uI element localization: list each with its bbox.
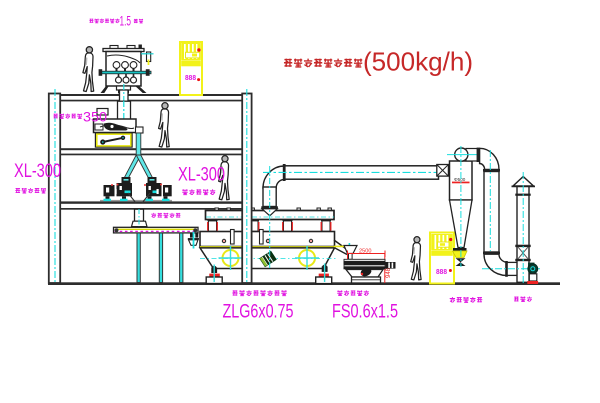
svg-text:Φ500: Φ500: [454, 177, 466, 182]
svg-text:888: 888: [436, 269, 447, 276]
svg-text:XL-300: XL-300: [178, 165, 225, 186]
svg-text:1.5: 1.5: [120, 13, 132, 29]
svg-text:(500kg/h): (500kg/h): [363, 47, 473, 77]
svg-text:ZLG6x0.75: ZLG6x0.75: [223, 302, 294, 323]
svg-text:948: 948: [386, 267, 392, 278]
svg-text:FS0.6x1.5: FS0.6x1.5: [332, 302, 398, 323]
svg-text:XL-300: XL-300: [14, 161, 61, 182]
svg-text:350: 350: [83, 109, 107, 125]
svg-text:2500: 2500: [359, 249, 371, 255]
svg-text:888: 888: [185, 75, 196, 82]
